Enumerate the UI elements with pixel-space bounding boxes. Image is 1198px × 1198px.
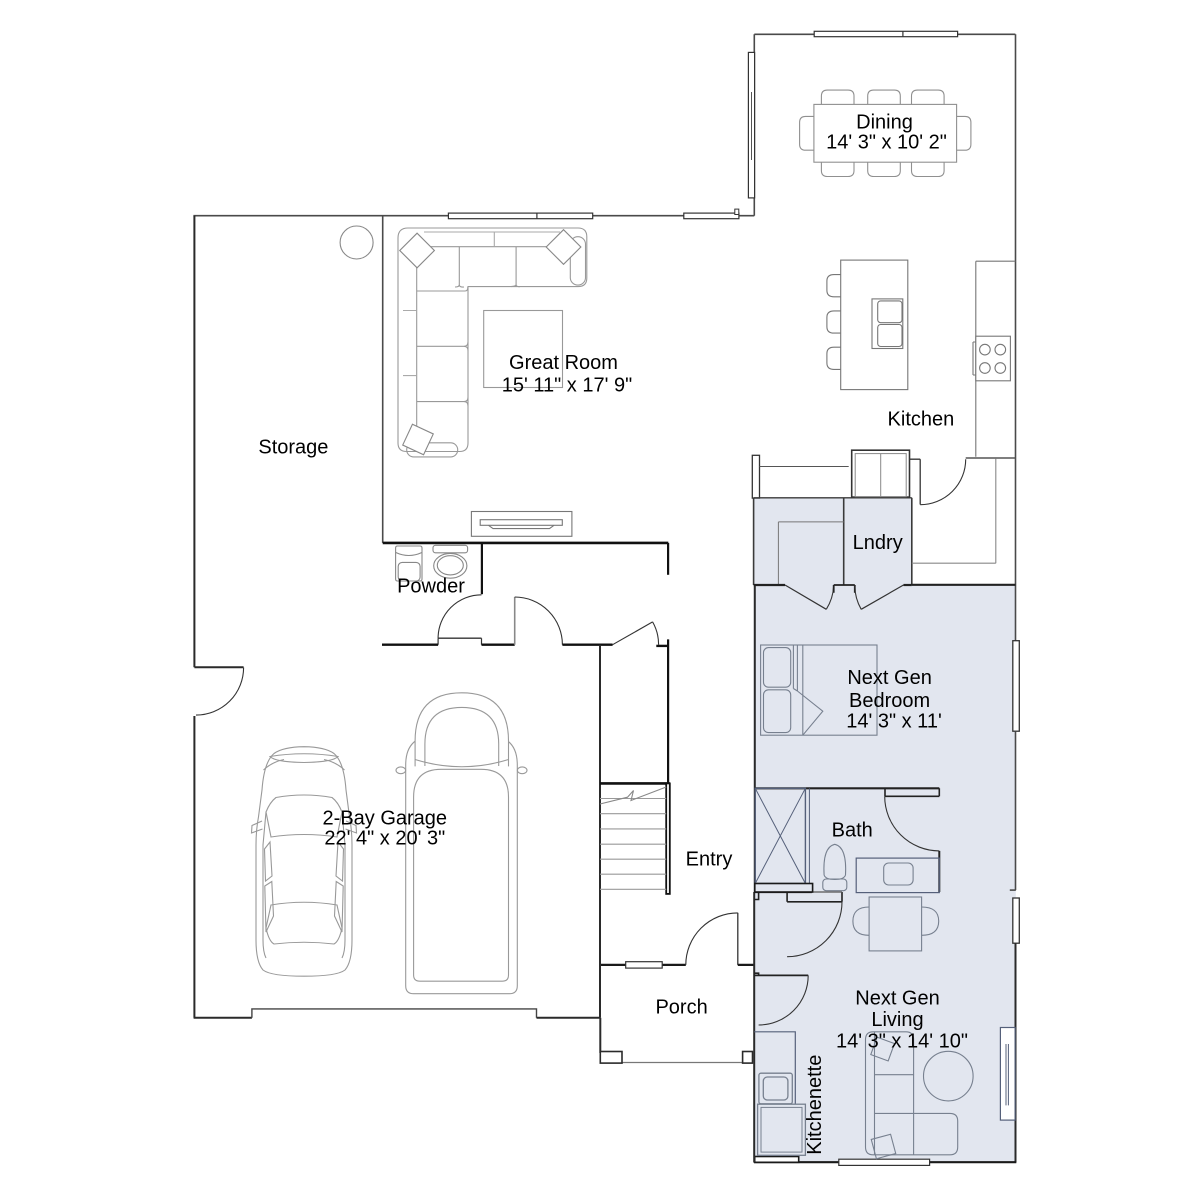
svg-text:2-Bay Garage: 2-Bay Garage: [323, 807, 448, 829]
svg-text:Bedroom: Bedroom: [849, 690, 930, 712]
svg-text:Lndry: Lndry: [853, 532, 903, 554]
svg-text:Next Gen: Next Gen: [847, 667, 931, 689]
svg-text:Bath: Bath: [832, 819, 873, 841]
svg-text:15' 11" x 17' 9": 15' 11" x 17' 9": [502, 374, 632, 396]
svg-text:22' 4" x 20' 3": 22' 4" x 20' 3": [324, 828, 445, 850]
svg-text:14' 3" x 14' 10": 14' 3" x 14' 10": [836, 1031, 968, 1053]
svg-text:Dining: Dining: [856, 112, 913, 134]
svg-text:Storage: Storage: [258, 437, 328, 459]
svg-text:Kitchenette: Kitchenette: [804, 1055, 826, 1155]
svg-text:Porch: Porch: [655, 996, 707, 1018]
svg-text:Powder: Powder: [397, 575, 465, 597]
svg-text:Great Room: Great Room: [509, 352, 618, 374]
svg-text:Entry: Entry: [686, 849, 733, 871]
svg-text:14' 3" x 10' 2": 14' 3" x 10' 2": [826, 131, 947, 153]
svg-text:Kitchen: Kitchen: [888, 409, 955, 431]
svg-text:Next Gen: Next Gen: [855, 988, 939, 1010]
svg-text:Living: Living: [871, 1009, 923, 1031]
svg-text:14' 3" x 11': 14' 3" x 11': [846, 711, 942, 733]
